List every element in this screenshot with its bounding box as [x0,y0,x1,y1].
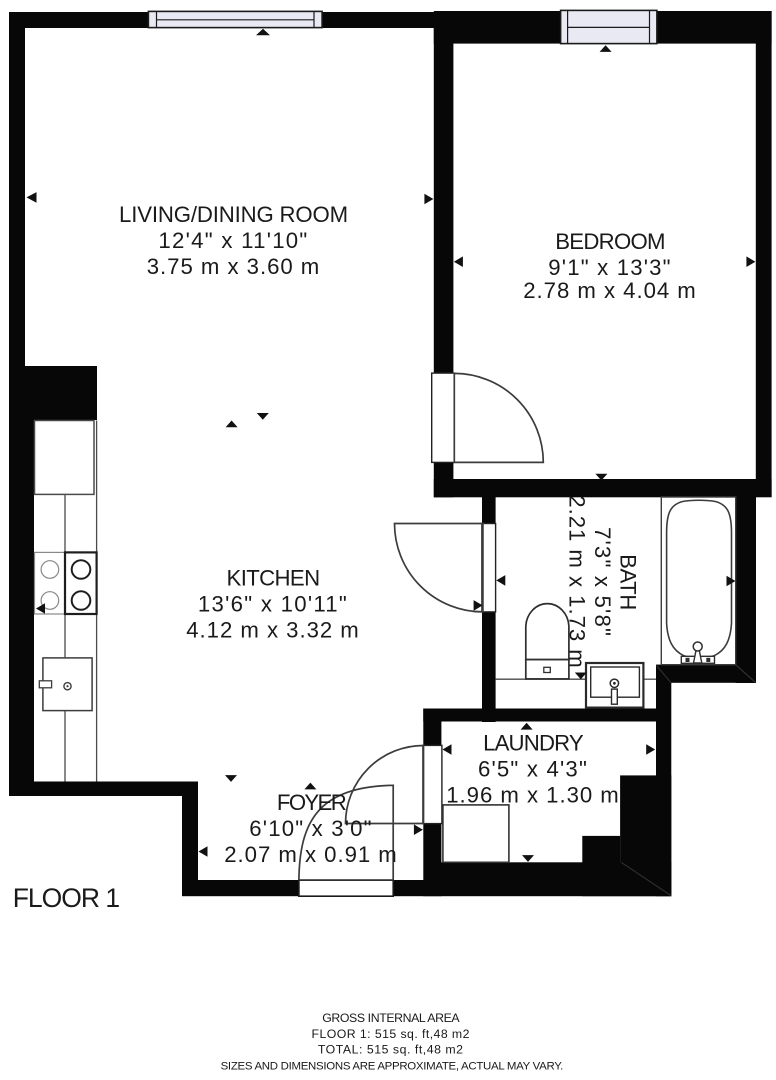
svg-text:LAUNDRY: LAUNDRY [483,731,584,756]
svg-text:4.12 m x 3.32 m: 4.12 m x 3.32 m [186,618,359,643]
svg-text:GROSS INTERNAL AREA: GROSS INTERNAL AREA [322,1011,460,1025]
svg-text:FLOOR 1: 515 sq. ft,48 m2: FLOOR 1: 515 sq. ft,48 m2 [312,1027,470,1041]
svg-text:12'4" x 11'10": 12'4" x 11'10" [158,228,308,253]
svg-text:2.21 m x 1.73 m: 2.21 m x 1.73 m [565,495,590,668]
svg-text:BATH: BATH [616,554,641,610]
svg-text:6'5" x 4'3": 6'5" x 4'3" [478,757,588,782]
svg-text:2.78 m x 4.04 m: 2.78 m x 4.04 m [523,278,696,303]
svg-text:1.96 m x 1.30 m: 1.96 m x 1.30 m [446,783,619,808]
svg-text:3.75 m x 3.60 m: 3.75 m x 3.60 m [147,254,320,279]
svg-text:KITCHEN: KITCHEN [227,566,320,591]
svg-text:9'1" x 13'3": 9'1" x 13'3" [548,255,671,280]
svg-text:FLOOR 1: FLOOR 1 [13,883,120,913]
svg-text:7'3" x 5'8": 7'3" x 5'8" [590,527,615,637]
svg-text:SIZES AND DIMENSIONS ARE APPRO: SIZES AND DIMENSIONS ARE APPROXIMATE, AC… [221,1061,563,1073]
svg-text:6'10" x 3'0": 6'10" x 3'0" [249,816,372,841]
svg-text:TOTAL: 515 sq. ft,48 m2: TOTAL: 515 sq. ft,48 m2 [318,1043,464,1057]
svg-text:BEDROOM: BEDROOM [555,229,665,254]
svg-text:LIVING/DINING ROOM: LIVING/DINING ROOM [119,202,348,227]
svg-text:2.07 m x 0.91 m: 2.07 m x 0.91 m [224,842,397,867]
svg-text:13'6" x 10'11": 13'6" x 10'11" [198,592,348,617]
svg-text:FOYER: FOYER [277,790,346,815]
